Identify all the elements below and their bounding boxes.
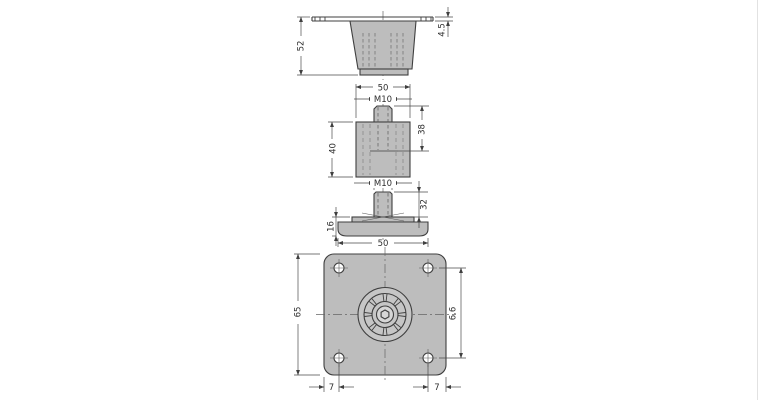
dim-leveler-base-diameter: 50 [378, 239, 389, 249]
leveler-step [352, 217, 414, 222]
dim-leveler-base-height: 16 [327, 221, 337, 232]
leveler-stem [374, 192, 392, 217]
dim-leveler-thread: M10 [374, 179, 392, 189]
dim-plate-edge-offset-left: 7 [329, 383, 334, 393]
dim-leveler-stem-length: 32 [420, 199, 430, 210]
leveler-front-view [338, 187, 428, 240]
buffer-front-view [356, 100, 410, 182]
buffer-stud [374, 106, 392, 122]
socket-body [350, 21, 416, 69]
dim-buffer-height: 40 [329, 143, 339, 154]
dim-plate-edge-offset-right: 7 [434, 383, 439, 393]
plate-central-boss [358, 288, 412, 342]
leveler-disk [338, 222, 428, 236]
technical-drawing-page: 52 4.5 [0, 0, 768, 400]
boss-center-hole [377, 306, 394, 323]
dim-buffer-thread: M10 [374, 95, 392, 105]
plate-plan-view [316, 247, 456, 383]
dim-buffer-diameter: 50 [378, 84, 389, 94]
dim-plate-size: 65 [294, 307, 304, 318]
dim-socket-height: 52 [297, 41, 307, 52]
dim-buffer-stud-length: 38 [418, 124, 428, 135]
plinth-foot-drawing: 52 4.5 [0, 0, 768, 400]
buffer-body [356, 122, 410, 177]
flange-slot-marks [315, 17, 431, 21]
dim-socket-flange-thickness: 4.5 [438, 23, 448, 37]
socket-base [360, 69, 408, 75]
socket-front-view [312, 11, 433, 80]
page-edge-rule [757, 0, 758, 400]
dim-plate-hole-dimension: 6.6 [449, 307, 459, 321]
